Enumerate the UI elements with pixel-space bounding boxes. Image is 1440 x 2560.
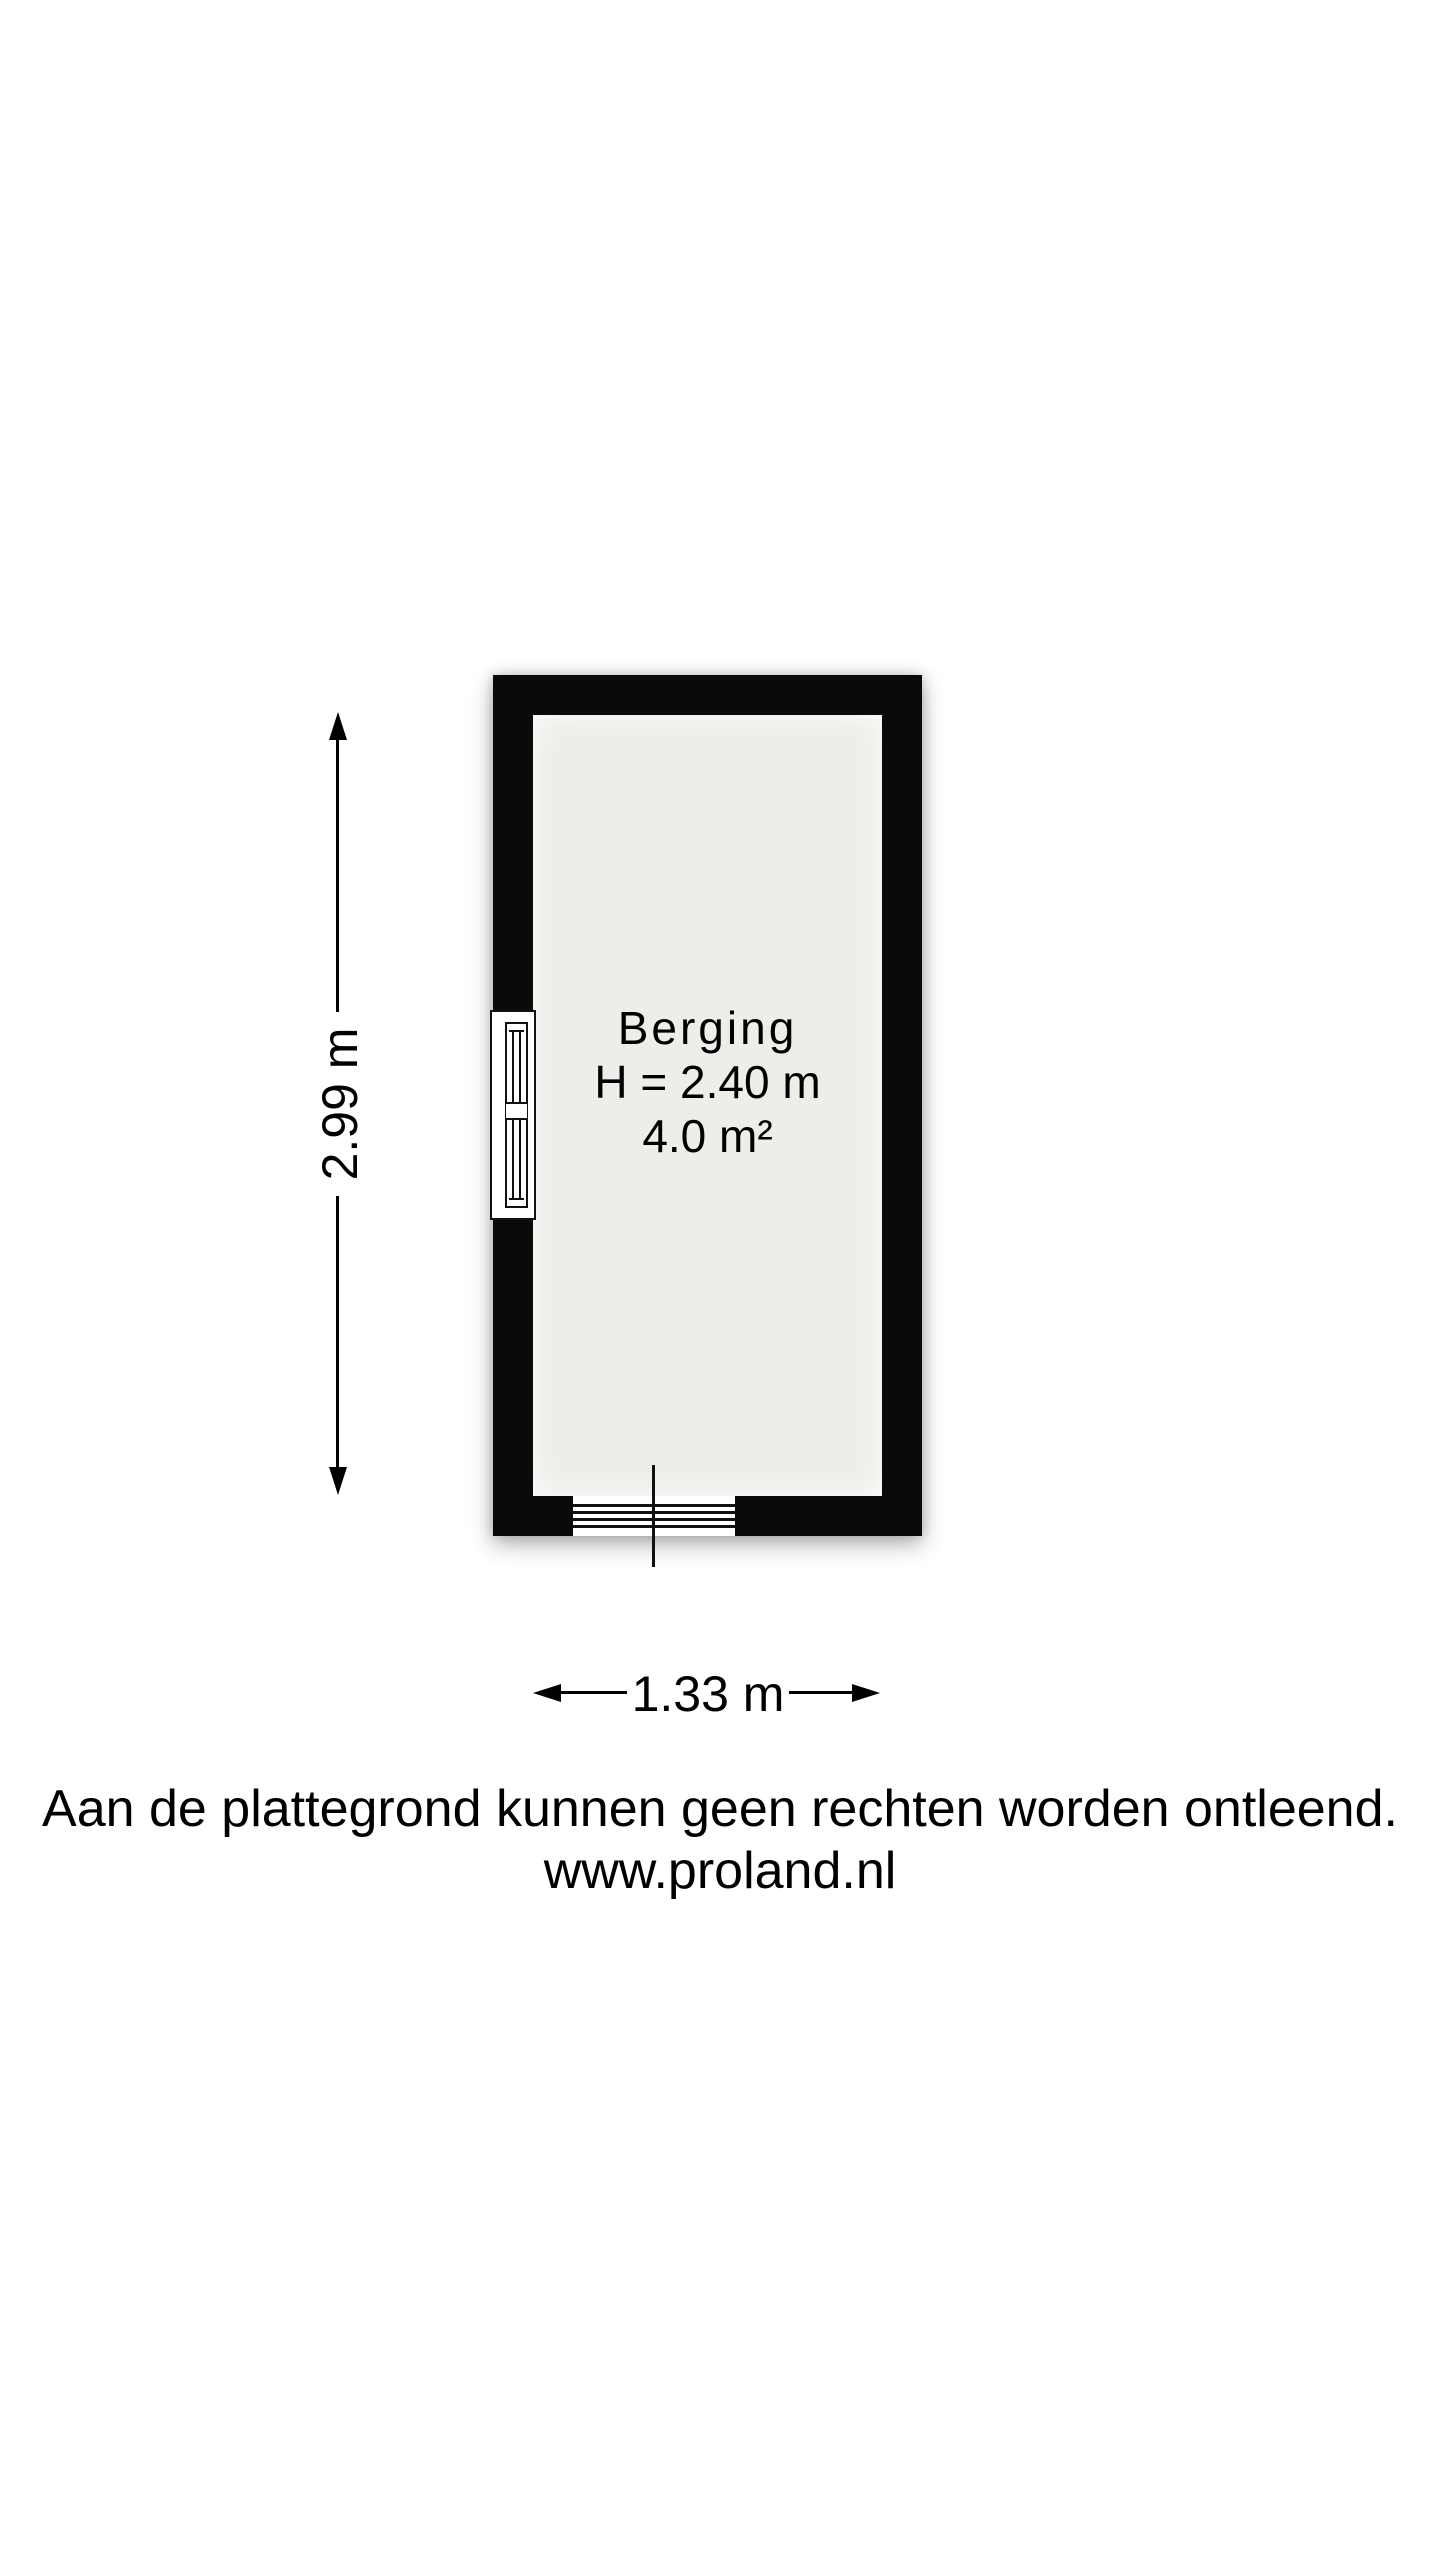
dimension-height-label: 2.99 m	[311, 1028, 369, 1181]
dimension-line-vertical-bottom	[336, 1196, 339, 1472]
room-area-label: 4.0 m²	[533, 1109, 882, 1163]
window-symbol	[490, 1010, 536, 1220]
disclaimer-text: Aan de plattegrond kunnen geen rechten w…	[0, 1778, 1440, 1840]
dimension-arrow-left-icon	[533, 1684, 561, 1702]
dimension-line-horizontal-right	[789, 1691, 857, 1694]
website-text: www.proland.nl	[0, 1840, 1440, 1902]
floor-plan: Berging H = 2.40 m 4.0 m²	[493, 675, 922, 1536]
footer: Aan de plattegrond kunnen geen rechten w…	[0, 1778, 1440, 1902]
floor-plan-page: Berging H = 2.40 m 4.0 m² 2.99 m	[0, 0, 1440, 2560]
dimension-arrow-right-icon	[852, 1684, 880, 1702]
dimension-line-horizontal-left	[559, 1691, 627, 1694]
door-axis-line	[652, 1465, 655, 1567]
dimension-arrow-down-icon	[329, 1467, 347, 1495]
window-frame	[505, 1022, 528, 1208]
room-ceiling-height-label: H = 2.40 m	[533, 1055, 882, 1109]
room-name-label: Berging	[533, 1001, 882, 1055]
window-frame-line	[509, 1198, 524, 1200]
window-mullion	[506, 1102, 527, 1120]
dimension-width-label: 1.33 m	[632, 1665, 785, 1723]
room-label-block: Berging H = 2.40 m 4.0 m²	[533, 1001, 882, 1163]
dimension-line-vertical-top	[336, 736, 339, 1012]
